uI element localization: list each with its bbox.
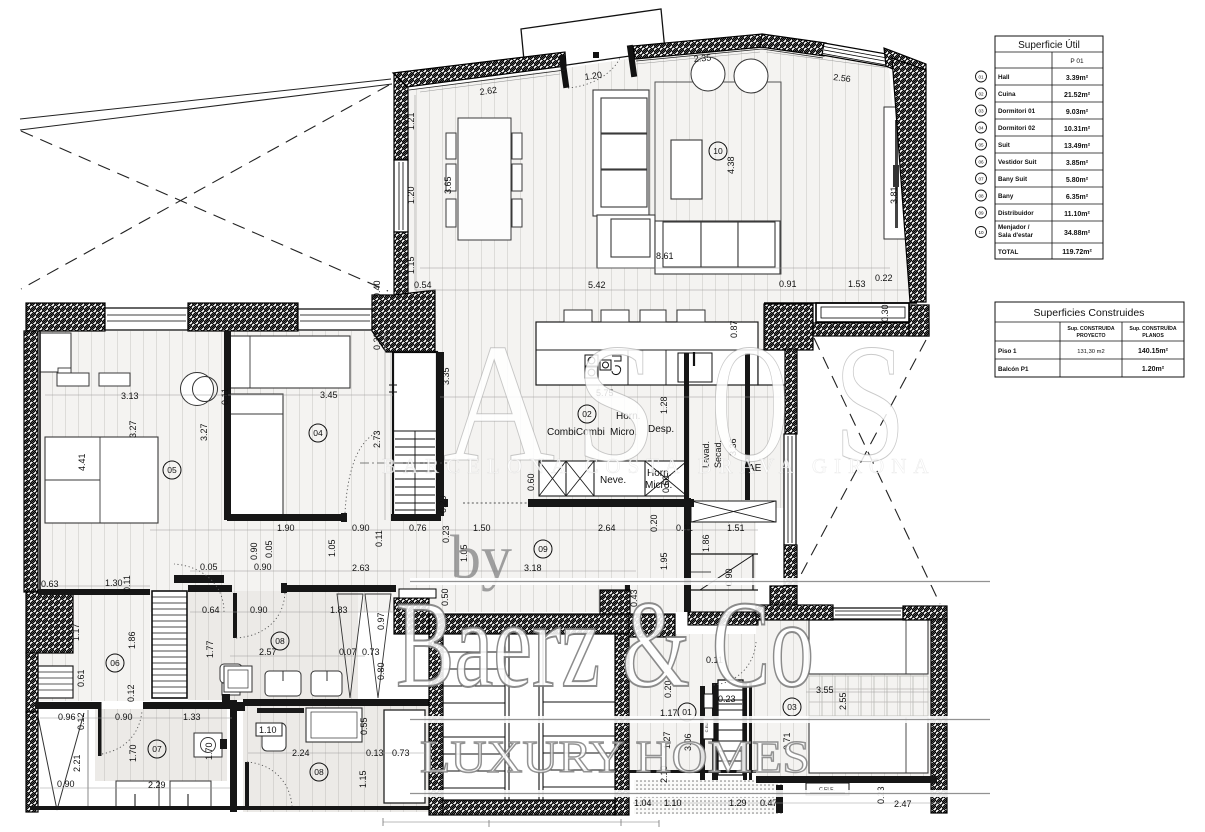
svg-text:0.73: 0.73 xyxy=(362,647,380,657)
svg-text:0.55: 0.55 xyxy=(359,717,369,735)
svg-text:08: 08 xyxy=(275,636,285,646)
svg-text:8.61: 8.61 xyxy=(656,251,674,261)
svg-text:0.90: 0.90 xyxy=(249,542,259,560)
svg-text:Baerz & Co: Baerz & Co xyxy=(396,576,814,713)
svg-text:11.10m²: 11.10m² xyxy=(1064,211,1090,218)
svg-text:1.77: 1.77 xyxy=(205,640,215,658)
svg-text:Bany Suit: Bany Suit xyxy=(998,176,1028,183)
svg-text:2.29: 2.29 xyxy=(148,780,166,790)
svg-text:1.20: 1.20 xyxy=(406,186,416,204)
svg-text:3.81: 3.81 xyxy=(889,186,899,204)
svg-text:0.97: 0.97 xyxy=(376,612,386,630)
svg-text:1.04: 1.04 xyxy=(634,798,652,808)
svg-text:140.15m²: 140.15m² xyxy=(1138,348,1169,355)
svg-text:0.47: 0.47 xyxy=(760,798,778,808)
svg-text:0.73: 0.73 xyxy=(392,748,410,758)
svg-text:4.41: 4.41 xyxy=(77,453,87,471)
svg-text:Sala d'estar: Sala d'estar xyxy=(998,232,1034,239)
svg-text:0.96: 0.96 xyxy=(58,712,76,722)
svg-text:131,30 m2: 131,30 m2 xyxy=(1077,349,1104,355)
svg-text:04: 04 xyxy=(978,126,984,131)
svg-text:Menjador /: Menjador / xyxy=(998,224,1030,231)
svg-text:06: 06 xyxy=(978,160,984,165)
svg-text:1.29: 1.29 xyxy=(729,798,747,808)
svg-text:1.28: 1.28 xyxy=(659,396,669,414)
svg-text:1.90: 1.90 xyxy=(277,523,295,533)
svg-text:Distribuidor: Distribuidor xyxy=(998,210,1034,217)
svg-text:2.24: 2.24 xyxy=(292,748,310,758)
svg-text:Dormitori 01: Dormitori 01 xyxy=(998,108,1036,115)
svg-text:0.90: 0.90 xyxy=(352,523,370,533)
svg-text:01: 01 xyxy=(978,75,984,80)
svg-text:0.90: 0.90 xyxy=(57,779,75,789)
svg-text:1.86: 1.86 xyxy=(127,631,137,649)
svg-text:Hall: Hall xyxy=(998,74,1010,81)
svg-text:3.85m²: 3.85m² xyxy=(1066,160,1089,167)
svg-text:3.39m²: 3.39m² xyxy=(1066,75,1089,82)
svg-text:1.33: 1.33 xyxy=(183,712,201,722)
svg-text:09: 09 xyxy=(538,544,548,554)
svg-text:5.42: 5.42 xyxy=(588,280,606,290)
svg-text:Sup. CONSTRUIDA: Sup. CONSTRUIDA xyxy=(1067,326,1115,332)
svg-text:0.13: 0.13 xyxy=(366,748,384,758)
svg-text:1.83: 1.83 xyxy=(330,605,348,615)
svg-text:02: 02 xyxy=(978,92,984,97)
svg-text:10: 10 xyxy=(713,146,723,156)
svg-text:0.05: 0.05 xyxy=(200,562,218,572)
svg-text:0.12: 0.12 xyxy=(126,684,136,702)
svg-text:0.61: 0.61 xyxy=(76,669,86,687)
svg-text:2.21: 2.21 xyxy=(72,754,82,772)
svg-text:3.27: 3.27 xyxy=(128,420,138,438)
svg-text:2.47: 2.47 xyxy=(894,799,912,809)
svg-text:09: 09 xyxy=(978,211,984,216)
svg-text:Bany: Bany xyxy=(998,193,1014,200)
svg-text:Dormitori 02: Dormitori 02 xyxy=(998,125,1036,132)
svg-text:0.05: 0.05 xyxy=(264,540,274,558)
svg-text:PROYECTO: PROYECTO xyxy=(1076,333,1105,339)
svg-text:1.95: 1.95 xyxy=(659,552,669,570)
svg-text:P 01: P 01 xyxy=(1070,58,1084,65)
svg-text:07: 07 xyxy=(978,177,984,182)
svg-text:0.11: 0.11 xyxy=(122,575,132,592)
svg-text:1.21: 1.21 xyxy=(406,112,416,130)
svg-text:Balcón P1: Balcón P1 xyxy=(998,366,1029,373)
svg-text:2.56: 2.56 xyxy=(833,72,852,84)
svg-text:21.52m²: 21.52m² xyxy=(1064,92,1091,99)
svg-text:0.11: 0.11 xyxy=(676,523,693,533)
svg-text:2.35: 2.35 xyxy=(693,53,711,64)
svg-text:0.12: 0.12 xyxy=(76,712,86,730)
svg-text:0.90: 0.90 xyxy=(250,605,268,615)
svg-text:BARCELONA COSTA BRAVA GIRONA: BARCELONA COSTA BRAVA GIRONA xyxy=(382,454,936,478)
svg-text:0.20: 0.20 xyxy=(438,495,448,513)
svg-text:3.13: 3.13 xyxy=(121,391,139,401)
svg-text:08: 08 xyxy=(314,767,324,777)
svg-text:1.10: 1.10 xyxy=(664,798,682,808)
svg-text:1.15: 1.15 xyxy=(406,256,416,274)
svg-text:0.64: 0.64 xyxy=(202,605,220,615)
svg-text:08: 08 xyxy=(978,194,984,199)
svg-text:1.86: 1.86 xyxy=(701,534,711,552)
svg-text:10: 10 xyxy=(978,230,984,235)
svg-text:5.80m²: 5.80m² xyxy=(1066,177,1089,184)
svg-text:6.35m²: 6.35m² xyxy=(1066,194,1089,201)
svg-text:1.70: 1.70 xyxy=(204,742,214,760)
svg-text:0.11: 0.11 xyxy=(220,388,230,405)
svg-text:0.07: 0.07 xyxy=(339,647,357,657)
svg-text:Superficies Construides: Superficies Construides xyxy=(1034,307,1145,319)
svg-text:06: 06 xyxy=(110,658,120,668)
svg-text:2.63: 2.63 xyxy=(352,563,370,573)
svg-text:3.27: 3.27 xyxy=(199,423,209,441)
svg-text:07: 07 xyxy=(152,744,162,754)
svg-text:0.54: 0.54 xyxy=(414,280,432,290)
svg-text:3.18: 3.18 xyxy=(524,563,542,573)
svg-text:0.11: 0.11 xyxy=(374,530,384,547)
svg-text:0.33: 0.33 xyxy=(372,332,382,350)
svg-text:1.30: 1.30 xyxy=(105,578,123,588)
svg-text:Cuina: Cuina xyxy=(998,91,1016,98)
svg-text:0.63: 0.63 xyxy=(41,579,59,589)
svg-text:13.49m²: 13.49m² xyxy=(1064,143,1091,150)
svg-text:PLANOS: PLANOS xyxy=(1142,333,1164,339)
svg-text:0.90: 0.90 xyxy=(254,562,272,572)
svg-text:Superficie Útil: Superficie Útil xyxy=(1018,38,1080,51)
svg-text:1.20m²: 1.20m² xyxy=(1142,366,1165,373)
svg-text:3.55: 3.55 xyxy=(816,685,834,695)
svg-text:0.90: 0.90 xyxy=(115,712,133,722)
svg-text:1.53: 1.53 xyxy=(848,279,866,289)
svg-text:LUXURY HOMES: LUXURY HOMES xyxy=(420,731,810,782)
svg-text:2.64: 2.64 xyxy=(598,523,616,533)
svg-text:2.55: 2.55 xyxy=(838,692,848,710)
svg-text:2.57: 2.57 xyxy=(259,647,277,657)
svg-text:9.03m²: 9.03m² xyxy=(1066,109,1089,116)
svg-text:0.80: 0.80 xyxy=(376,662,386,680)
svg-text:4.38: 4.38 xyxy=(726,156,736,174)
svg-text:1.10: 1.10 xyxy=(259,725,277,735)
svg-text:1.17: 1.17 xyxy=(71,623,81,641)
svg-text:3.45: 3.45 xyxy=(320,390,338,400)
svg-text:0.40: 0.40 xyxy=(372,280,382,298)
svg-text:1.15: 1.15 xyxy=(358,770,368,788)
svg-text:Piso 1: Piso 1 xyxy=(998,348,1017,355)
svg-text:1.70: 1.70 xyxy=(128,744,138,762)
svg-text:05: 05 xyxy=(978,143,984,148)
svg-text:Vestidor Suit: Vestidor Suit xyxy=(998,159,1037,166)
svg-text:0.76: 0.76 xyxy=(409,523,427,533)
svg-text:03: 03 xyxy=(978,109,984,114)
svg-text:04: 04 xyxy=(313,428,323,438)
svg-text:0.20: 0.20 xyxy=(649,514,659,532)
svg-text:0.91: 0.91 xyxy=(779,279,797,289)
svg-text:3.65: 3.65 xyxy=(443,176,453,194)
svg-text:2.73: 2.73 xyxy=(372,430,382,448)
svg-text:05: 05 xyxy=(167,465,177,475)
svg-text:Suit: Suit xyxy=(998,142,1011,149)
svg-text:1.05: 1.05 xyxy=(327,539,337,557)
svg-text:34.88m²: 34.88m² xyxy=(1064,230,1091,237)
svg-text:Sup. CONSTRUÏDA: Sup. CONSTRUÏDA xyxy=(1129,325,1177,332)
svg-text:TOTAL: TOTAL xyxy=(998,249,1019,256)
svg-text:10.31m²: 10.31m² xyxy=(1064,126,1091,133)
svg-text:1.51: 1.51 xyxy=(727,523,745,533)
svg-text:0.22: 0.22 xyxy=(875,273,893,283)
svg-text:119.72m²: 119.72m² xyxy=(1062,249,1092,256)
